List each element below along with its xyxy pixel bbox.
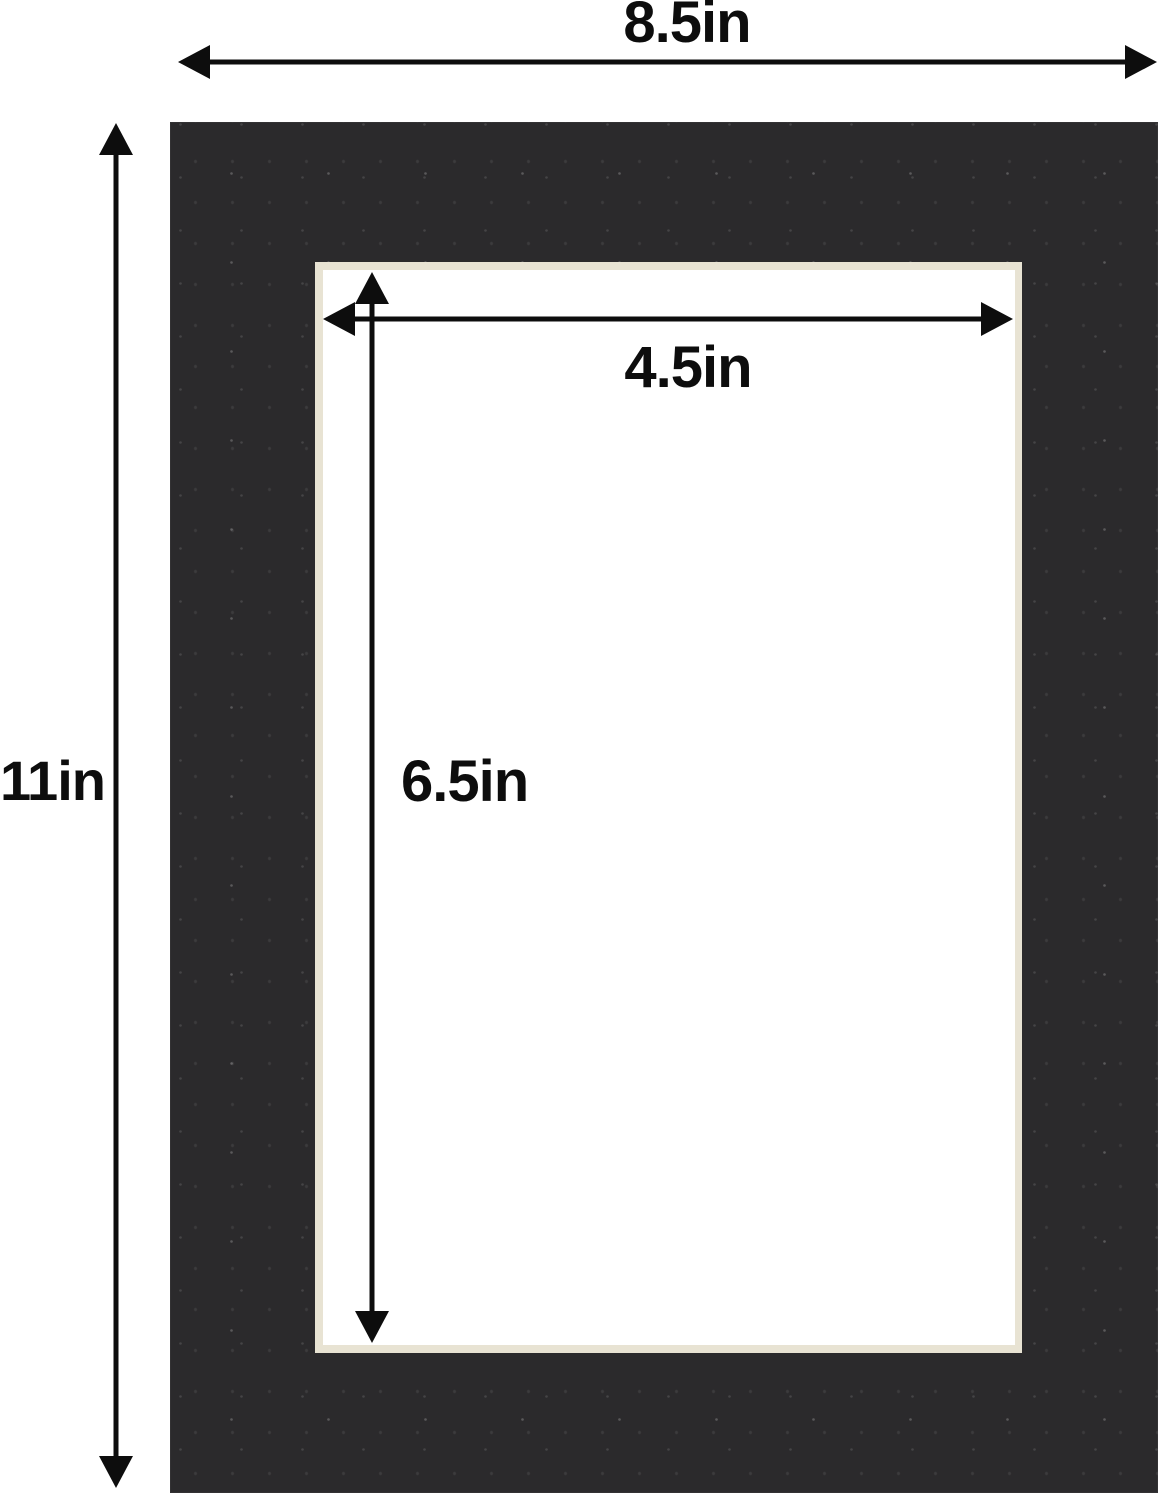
- outer-width-arrow-right-head: [1125, 45, 1157, 79]
- outer-width-arrow-shaft: [202, 60, 964, 65]
- outer-width-arrow-left-head: [178, 45, 210, 79]
- product-dimension-diagram: 8.5in 11in 4.5in 6.5in: [0, 0, 1166, 1500]
- opening-height-label: 6.5in: [401, 753, 621, 811]
- outer-height-label: 11in: [0, 753, 102, 809]
- outer-height-arrow-bottom-head: [99, 1456, 133, 1488]
- outer-height-arrow-shaft: [114, 150, 119, 1461]
- opening-width-label: 4.5in: [538, 339, 838, 397]
- outer-height-arrow-top-head: [99, 123, 133, 155]
- outer-width-arrow-shaft2: [964, 60, 1133, 65]
- mat-board: [170, 122, 1158, 1493]
- outer-width-label: 8.5in: [537, 0, 837, 52]
